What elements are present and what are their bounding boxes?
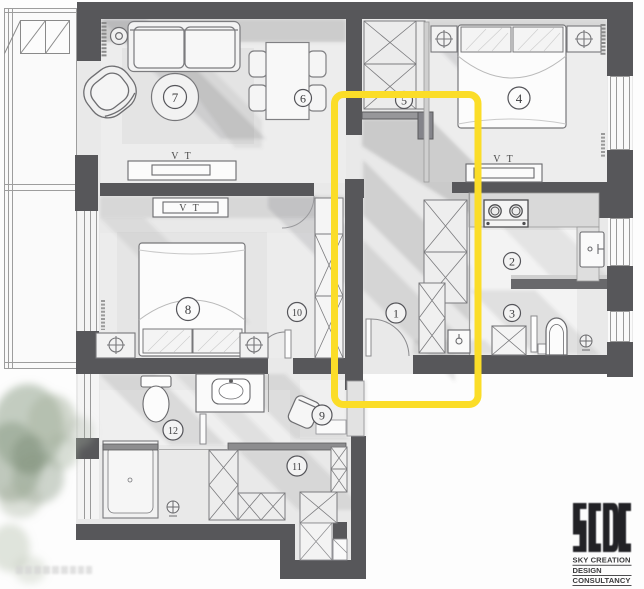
svg-text:12: 12: [168, 426, 178, 437]
svg-text:V T: V T: [493, 154, 514, 165]
svg-text:1: 1: [393, 307, 399, 321]
svg-text:4: 4: [516, 91, 523, 106]
svg-text:7: 7: [172, 90, 179, 105]
svg-text:V T: V T: [171, 151, 192, 162]
svg-text:3: 3: [509, 307, 515, 321]
svg-text:9: 9: [319, 409, 325, 423]
svg-text:V T: V T: [179, 203, 200, 214]
svg-text:SKY CREATION: SKY CREATION: [573, 556, 631, 565]
svg-text:11: 11: [292, 462, 302, 473]
svg-text:DESIGN: DESIGN: [573, 566, 602, 575]
svg-text:8: 8: [185, 302, 192, 317]
svg-text:6: 6: [300, 92, 306, 106]
svg-text:2: 2: [509, 255, 515, 269]
svg-text:CONSULTANCY: CONSULTANCY: [573, 576, 631, 585]
svg-text:10: 10: [292, 308, 302, 319]
